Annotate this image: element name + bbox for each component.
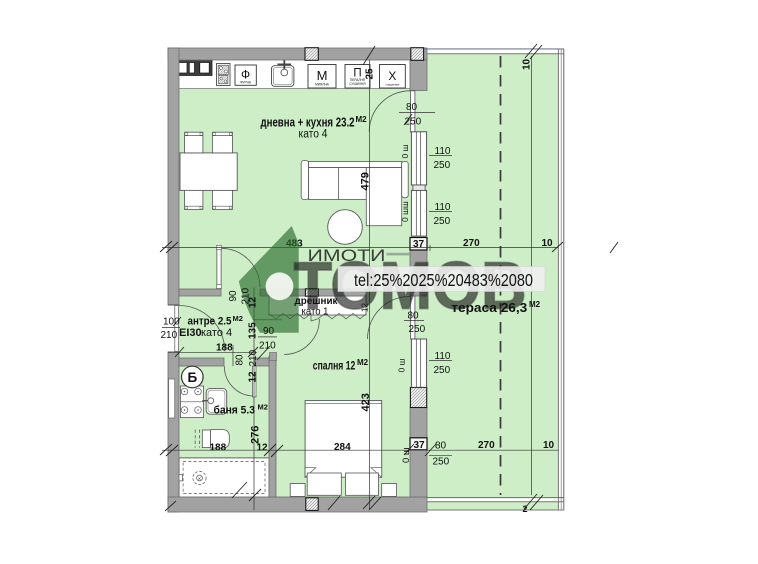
svg-text:10: 10 <box>542 238 554 249</box>
svg-text:423: 423 <box>360 393 372 411</box>
svg-text:М2: М2 <box>357 358 369 367</box>
svg-text:×: × <box>198 476 201 482</box>
svg-text:М2: М2 <box>529 300 541 309</box>
svg-text:12: 12 <box>361 303 370 312</box>
svg-text:250: 250 <box>405 117 422 128</box>
svg-text:tel:25%2025%20483%2080: tel:25%2025%20483%2080 <box>354 270 533 290</box>
svg-text:0 ш: 0 ш <box>401 447 412 463</box>
svg-text:дневна + кухня 23.2: дневна + кухня 23.2 <box>261 115 355 129</box>
svg-text:37: 37 <box>413 239 425 250</box>
svg-text:250: 250 <box>434 365 451 376</box>
svg-text:250: 250 <box>434 160 451 171</box>
svg-text:спалня 12: спалня 12 <box>313 359 356 373</box>
svg-text:10: 10 <box>522 58 533 70</box>
svg-text:М2: М2 <box>258 403 268 412</box>
svg-text:276: 276 <box>250 426 262 444</box>
svg-text:баня 5.3: баня 5.3 <box>214 404 256 416</box>
svg-text:Б: Б <box>187 370 197 385</box>
svg-text:25: 25 <box>365 68 376 80</box>
svg-text:270: 270 <box>478 440 495 451</box>
svg-text:СУШИЛНЯ: СУШИЛНЯ <box>349 82 366 86</box>
svg-text:МИЯЛНА: МИЯЛНА <box>315 83 330 87</box>
svg-text:X: X <box>388 69 396 83</box>
svg-text:210: 210 <box>248 349 259 366</box>
svg-text:80: 80 <box>235 354 246 366</box>
svg-text:0 ш: 0 ш <box>400 144 410 158</box>
svg-text:12: 12 <box>248 296 259 308</box>
svg-text:90: 90 <box>263 326 275 337</box>
svg-text:EI30: EI30 <box>179 327 202 339</box>
svg-text:0 шш: 0 шш <box>400 201 410 222</box>
svg-text:210: 210 <box>259 341 276 352</box>
svg-text:188: 188 <box>216 343 233 354</box>
svg-text:10: 10 <box>543 440 555 451</box>
svg-text:като 4: като 4 <box>201 327 232 339</box>
svg-text:антре 2.5: антре 2.5 <box>188 315 232 327</box>
svg-text:188: 188 <box>210 443 227 454</box>
svg-text:110: 110 <box>435 351 451 362</box>
svg-text:270: 270 <box>463 238 480 249</box>
svg-text:37: 37 <box>414 440 426 451</box>
svg-text:250: 250 <box>433 456 450 467</box>
svg-text:ФУРНА: ФУРНА <box>240 80 252 84</box>
svg-text:тераса 26,3: тераса 26,3 <box>451 301 527 315</box>
svg-text:250: 250 <box>434 216 451 227</box>
svg-text:210: 210 <box>161 330 178 341</box>
svg-text:80: 80 <box>435 441 447 452</box>
svg-text:284: 284 <box>334 442 351 453</box>
svg-text:М2: М2 <box>233 314 243 323</box>
svg-text:М: М <box>317 68 328 83</box>
svg-text:90: 90 <box>228 290 239 302</box>
svg-text:110: 110 <box>435 146 451 157</box>
svg-text:като 1: като 1 <box>302 305 329 317</box>
svg-text:135: 135 <box>248 322 259 339</box>
svg-text:като 4: като 4 <box>299 129 329 141</box>
svg-text:хладилник: хладилник <box>386 83 401 87</box>
svg-text:250: 250 <box>409 324 426 335</box>
svg-text:110: 110 <box>435 202 451 213</box>
svg-text:80: 80 <box>406 102 418 113</box>
svg-text:0 ш: 0 ш <box>397 358 407 372</box>
svg-text:М2: М2 <box>356 115 368 124</box>
svg-text:80: 80 <box>408 310 420 321</box>
svg-text:100: 100 <box>163 316 180 327</box>
svg-text:479: 479 <box>360 172 372 190</box>
svg-text:12: 12 <box>248 371 259 383</box>
